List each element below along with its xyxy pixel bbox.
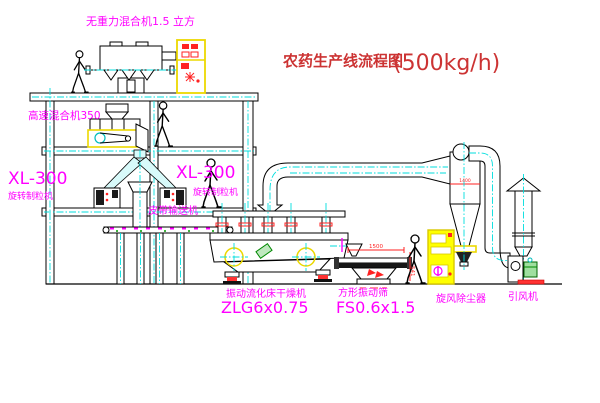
page-title: 农药生产线流程图 <box>282 52 403 70</box>
alarm-symbol <box>185 72 195 82</box>
gravity-mixer <box>84 42 178 93</box>
sieve-height-dimension: 541 <box>409 266 415 277</box>
sieve-length-dimension: 1500 <box>369 244 383 250</box>
fan-label: 引风机 <box>508 290 538 303</box>
granulator-mid-model-label: XL-300 <box>176 163 235 183</box>
gravity-mixer-label: 无重力混合机1.5 立方 <box>86 14 195 28</box>
granulator-left-name-label: 旋转制粒机 <box>8 190 53 202</box>
granulator-mid-name-label: 旋转制粒机 <box>193 186 238 198</box>
granulator-right <box>160 188 186 208</box>
dryer-elbow-duct <box>258 156 450 213</box>
belt-conveyor-label: 皮带输送机 <box>148 204 198 217</box>
drawing-canvas: 无重力混合机1.5 立方 农药生产线流程图 (500kg/h) 高速混合机350… <box>0 0 600 403</box>
granulator-left <box>94 188 120 208</box>
vibrating-sieve <box>334 247 412 288</box>
sieve-model-label: FS0.6x1.5 <box>336 298 415 317</box>
granulator-left-model-label: XL-300 <box>8 169 67 189</box>
dryer-model-label: ZLG6x0.75 <box>221 298 309 317</box>
control-cabinet-ground <box>428 230 454 284</box>
cyclone-diameter-dimension: 1400 <box>459 178 471 184</box>
induced-draft-fan <box>508 256 544 284</box>
cyclone-label: 旋风除尘器 <box>436 292 486 305</box>
control-cabinet-top <box>177 40 205 93</box>
page-title-capacity: (500kg/h) <box>393 51 500 76</box>
fluid-bed-dryer <box>210 203 348 284</box>
high-speed-mixer-label: 高速混合机350 <box>28 109 101 122</box>
cad-flowsheet: 无重力混合机1.5 立方 农药生产线流程图 (500kg/h) 高速混合机350… <box>0 0 600 403</box>
